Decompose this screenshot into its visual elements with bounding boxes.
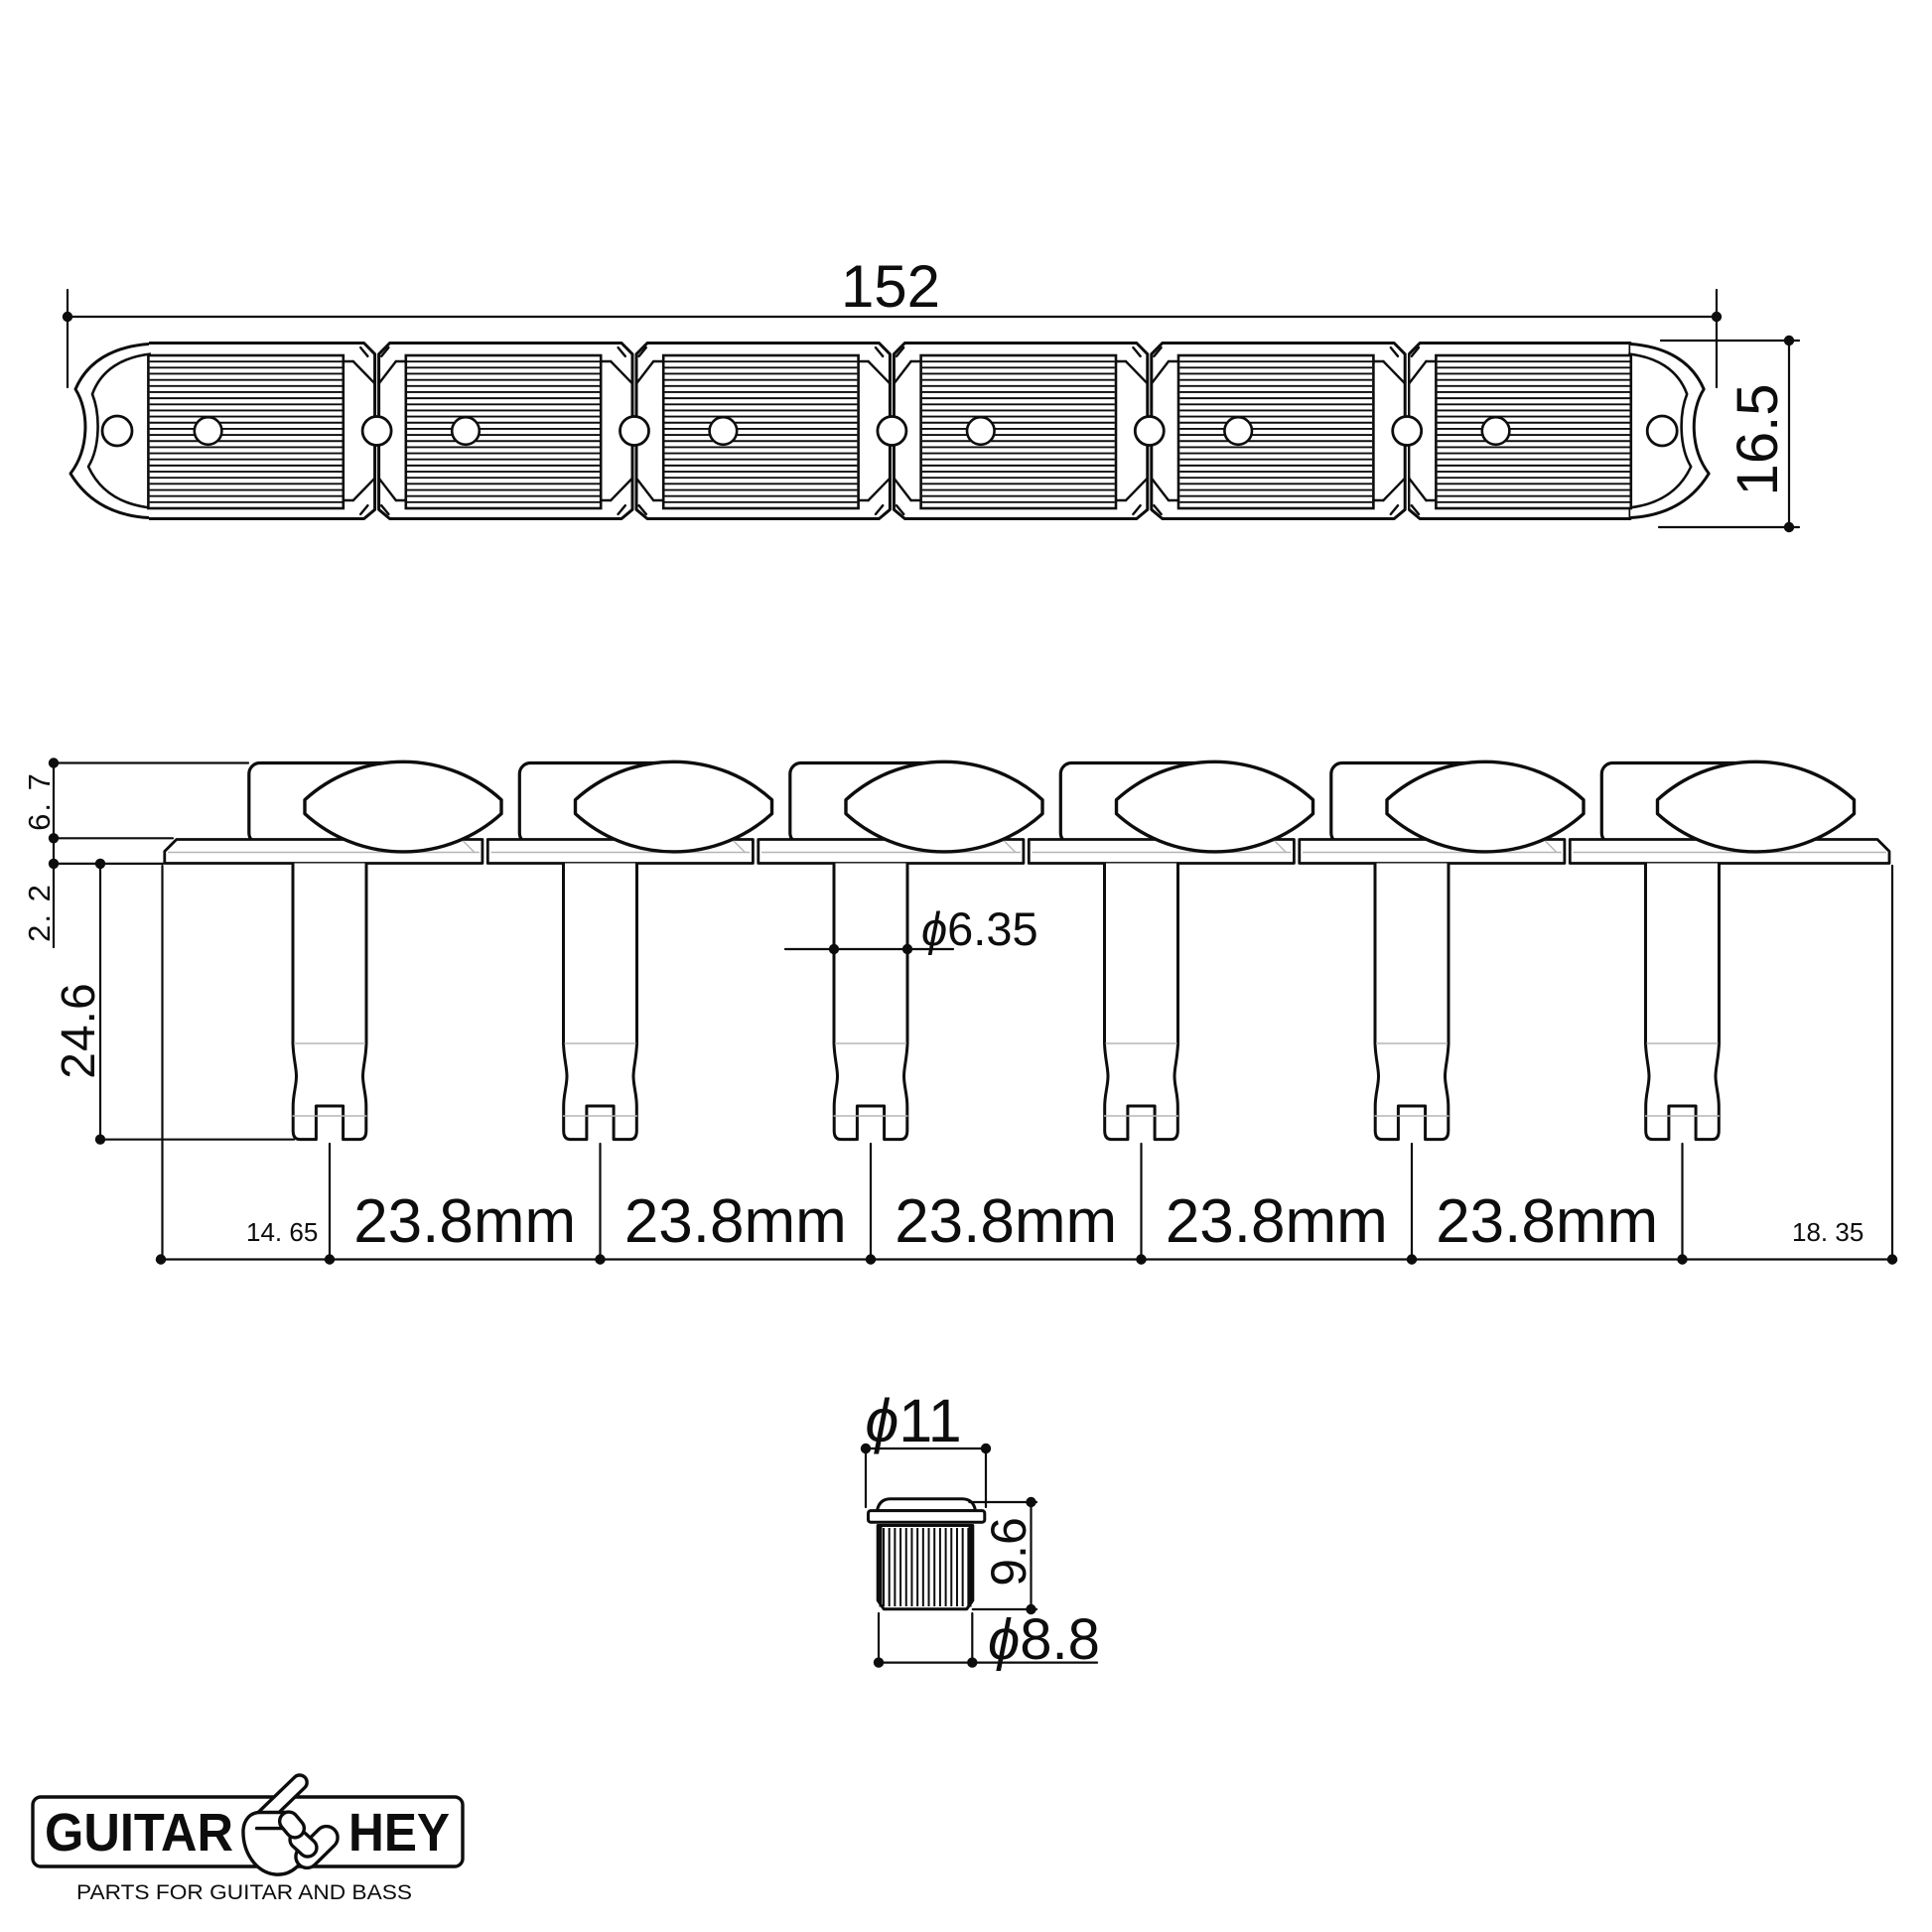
svg-text:2. 2: 2. 2 <box>22 883 57 942</box>
svg-text:ϕ8.8: ϕ8.8 <box>988 1607 1100 1672</box>
svg-text:23.8mm: 23.8mm <box>353 1187 576 1256</box>
svg-text:23.8mm: 23.8mm <box>1436 1187 1658 1256</box>
svg-text:152: 152 <box>841 253 940 320</box>
svg-text:6. 7: 6. 7 <box>22 771 57 831</box>
svg-text:23.8mm: 23.8mm <box>1166 1187 1388 1256</box>
svg-text:PARTS FOR GUITAR AND BASS: PARTS FOR GUITAR AND BASS <box>76 1881 412 1904</box>
svg-text:ϕ6.35: ϕ6.35 <box>921 902 1038 955</box>
svg-text:ϕ11: ϕ11 <box>865 1387 961 1454</box>
svg-text:14. 65: 14. 65 <box>246 1217 318 1247</box>
svg-text:16.5: 16.5 <box>1725 384 1790 496</box>
svg-text:GUITAR: GUITAR <box>45 1803 233 1863</box>
svg-text:23.8mm: 23.8mm <box>624 1187 847 1256</box>
svg-text:18. 35: 18. 35 <box>1792 1217 1863 1247</box>
svg-text:HEY: HEY <box>348 1803 450 1863</box>
svg-text:23.8mm: 23.8mm <box>895 1187 1117 1256</box>
svg-text:24.6: 24.6 <box>53 982 105 1078</box>
svg-text:9.6: 9.6 <box>981 1517 1036 1587</box>
